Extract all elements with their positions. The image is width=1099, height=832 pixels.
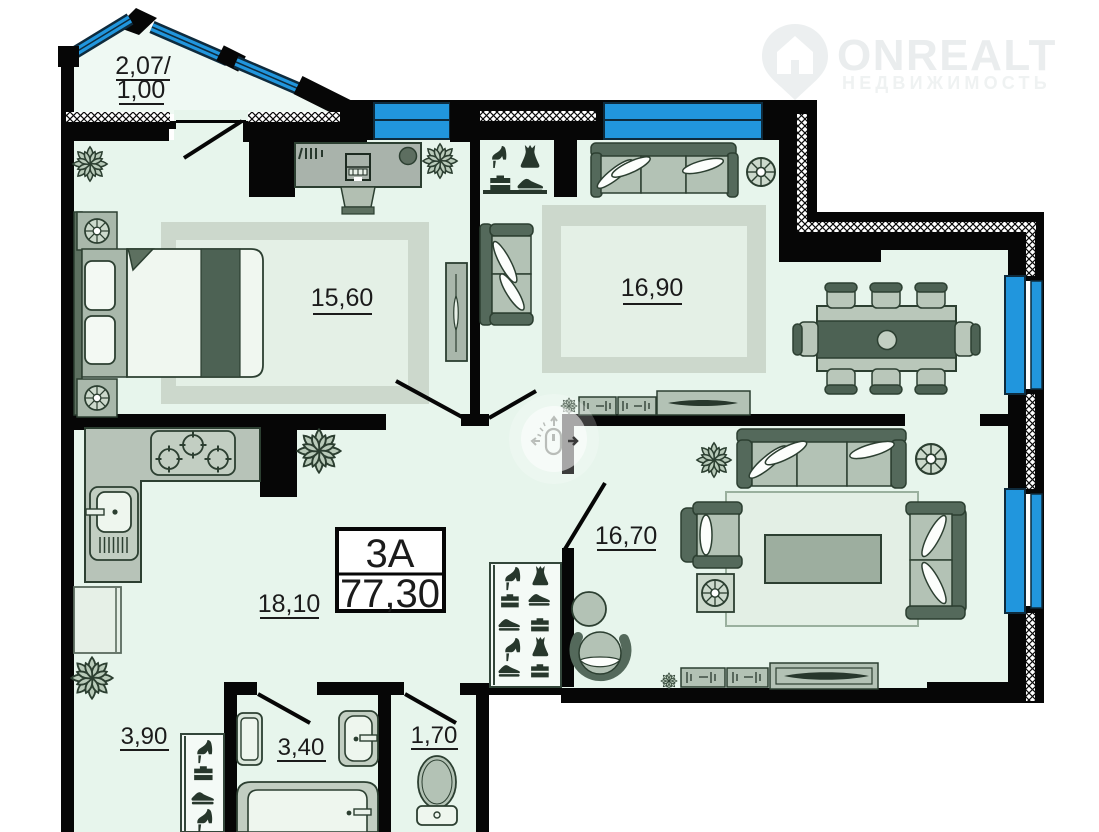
svg-text:3,40: 3,40 xyxy=(278,734,325,761)
svg-text:НЕДВИЖИМОСТЬ: НЕДВИЖИМОСТЬ xyxy=(842,73,1051,93)
svg-text:3,90: 3,90 xyxy=(121,723,168,750)
svg-text:15,60: 15,60 xyxy=(311,284,374,312)
svg-text:16,90: 16,90 xyxy=(621,274,684,302)
svg-text:1,00: 1,00 xyxy=(117,76,166,104)
svg-text:1,70: 1,70 xyxy=(411,722,458,749)
svg-text:3А: 3А xyxy=(366,532,415,576)
svg-text:18,10: 18,10 xyxy=(258,590,321,618)
svg-text:77,30: 77,30 xyxy=(340,572,440,616)
svg-text:16,70: 16,70 xyxy=(595,522,658,550)
